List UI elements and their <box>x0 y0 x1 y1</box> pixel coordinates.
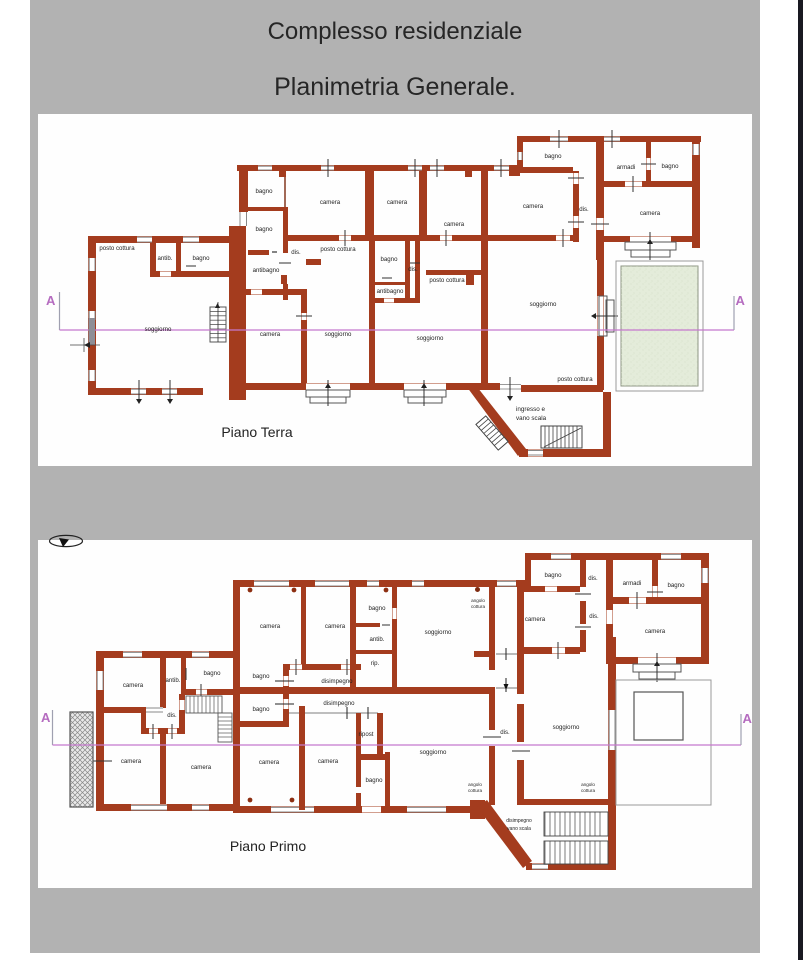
svg-text:bagno: bagno <box>253 706 271 713</box>
svg-text:posto cottura: posto cottura <box>557 376 593 383</box>
svg-text:antib.: antib. <box>166 677 181 684</box>
svg-text:A: A <box>743 711 753 726</box>
svg-text:soggiorno: soggiorno <box>530 301 557 308</box>
svg-text:bagno: bagno <box>668 582 686 589</box>
svg-text:soggiorno: soggiorno <box>325 331 352 338</box>
svg-text:bagno: bagno <box>253 673 271 680</box>
svg-text:rip.: rip. <box>371 660 380 667</box>
svg-text:camera: camera <box>387 199 408 206</box>
svg-text:camera: camera <box>325 623 346 630</box>
svg-text:A: A <box>46 293 56 308</box>
svg-text:Piano Primo: Piano Primo <box>230 838 306 854</box>
svg-text:dis.: dis. <box>588 575 598 582</box>
svg-text:disimpegno: disimpegno <box>321 678 353 685</box>
svg-text:camera: camera <box>318 758 339 765</box>
svg-text:dis.: dis. <box>291 249 301 256</box>
svg-text:camera: camera <box>121 758 142 765</box>
svg-text:camera: camera <box>640 210 661 217</box>
svg-text:cottura: cottura <box>581 788 595 793</box>
svg-text:camera: camera <box>191 764 212 771</box>
svg-text:armadi: armadi <box>623 580 642 587</box>
svg-text:dis.: dis. <box>579 206 589 213</box>
svg-text:bagno: bagno <box>256 226 274 233</box>
svg-text:camera: camera <box>523 203 544 210</box>
svg-text:armadi: armadi <box>617 164 636 171</box>
svg-text:bagno: bagno <box>256 188 274 195</box>
svg-text:camera: camera <box>260 623 281 630</box>
svg-text:bagno: bagno <box>545 153 563 160</box>
svg-text:camera: camera <box>259 759 280 766</box>
svg-text:A: A <box>41 710 51 725</box>
svg-text:camera: camera <box>525 616 546 623</box>
svg-text:A: A <box>736 293 746 308</box>
svg-text:angolo: angolo <box>471 598 485 603</box>
svg-text:antib.: antib. <box>370 636 385 643</box>
svg-text:antibagno: antibagno <box>377 288 404 295</box>
svg-text:Piano Terra: Piano Terra <box>221 424 293 440</box>
svg-text:camera: camera <box>320 199 341 206</box>
svg-text:soggiorno: soggiorno <box>145 326 172 333</box>
svg-text:camera: camera <box>645 628 666 635</box>
svg-text:soggiorno: soggiorno <box>420 749 447 756</box>
svg-text:bagno: bagno <box>381 256 399 263</box>
svg-text:cottura: cottura <box>468 788 482 793</box>
svg-text:camera: camera <box>260 331 281 338</box>
svg-text:angolo: angolo <box>468 782 482 787</box>
svg-text:vano scala: vano scala <box>516 415 547 422</box>
svg-text:soggiorno: soggiorno <box>425 629 452 636</box>
svg-text:dis.: dis. <box>589 613 599 620</box>
svg-text:camera: camera <box>123 682 144 689</box>
svg-text:soggiorno: soggiorno <box>417 335 444 342</box>
svg-text:bagno: bagno <box>193 255 211 262</box>
svg-text:posto cottura: posto cottura <box>99 245 135 252</box>
svg-text:ripost: ripost <box>359 731 374 738</box>
svg-text:dis.: dis. <box>167 712 177 719</box>
svg-text:antib.: antib. <box>158 255 173 262</box>
svg-text:camera: camera <box>444 221 465 228</box>
svg-text:bagno: bagno <box>369 605 387 612</box>
svg-text:bagno: bagno <box>545 572 563 579</box>
svg-text:bagno: bagno <box>662 163 680 170</box>
svg-text:soggiorno: soggiorno <box>553 724 580 731</box>
svg-text:posto cottura: posto cottura <box>429 277 465 284</box>
svg-text:bagno: bagno <box>366 777 384 784</box>
svg-text:dis.: dis. <box>500 729 510 736</box>
svg-text:ingresso e: ingresso e <box>516 406 546 413</box>
svg-text:disimpegno: disimpegno <box>323 700 355 707</box>
svg-text:cottura: cottura <box>471 604 485 609</box>
svg-text:dis.: dis. <box>408 266 418 273</box>
svg-text:antibagno: antibagno <box>253 267 280 274</box>
svg-text:vano scala: vano scala <box>507 826 531 832</box>
svg-text:posto cottura: posto cottura <box>320 246 356 253</box>
svg-text:bagno: bagno <box>204 670 222 677</box>
svg-text:angolo: angolo <box>581 782 595 787</box>
svg-text:disimpegno: disimpegno <box>506 818 532 824</box>
